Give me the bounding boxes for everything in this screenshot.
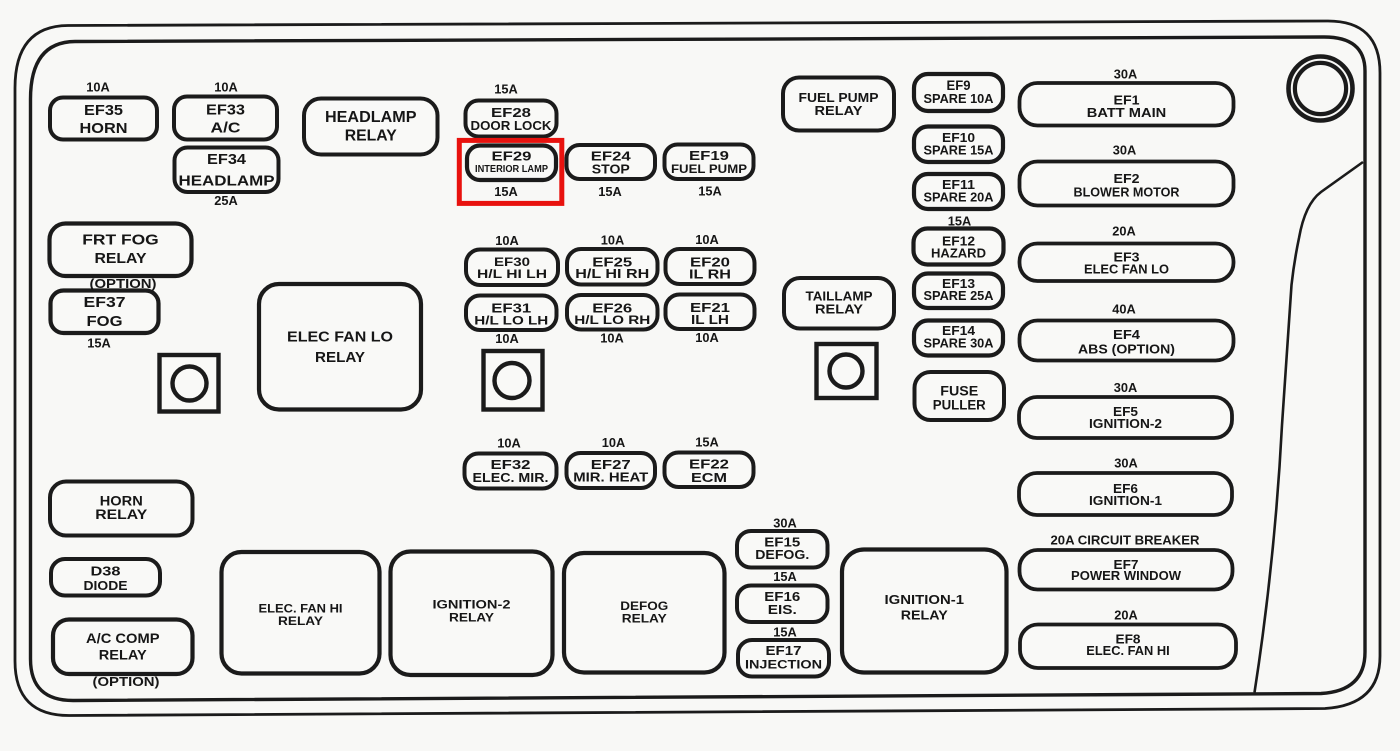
- svg-text:FUSE: FUSE: [940, 384, 978, 399]
- svg-text:30A: 30A: [773, 516, 797, 531]
- svg-text:HEADLAMP: HEADLAMP: [325, 109, 417, 126]
- svg-text:20A CIRCUIT BREAKER: 20A CIRCUIT BREAKER: [1051, 533, 1201, 548]
- svg-text:A/C COMP: A/C COMP: [86, 630, 160, 646]
- svg-text:H/L HI LH: H/L HI LH: [477, 267, 547, 281]
- svg-text:SPARE 20A: SPARE 20A: [924, 191, 994, 205]
- svg-text:ELEC. MIR.: ELEC. MIR.: [473, 471, 549, 485]
- svg-text:20A: 20A: [1112, 224, 1136, 239]
- svg-text:15A: 15A: [598, 184, 622, 199]
- svg-text:20A: 20A: [1114, 608, 1138, 623]
- svg-text:15A: 15A: [773, 569, 797, 584]
- svg-text:10A: 10A: [601, 233, 625, 248]
- svg-text:INJECTION: INJECTION: [745, 658, 822, 672]
- svg-text:RELAY: RELAY: [449, 611, 494, 625]
- svg-text:25A: 25A: [214, 193, 238, 208]
- svg-text:EF33: EF33: [206, 102, 245, 119]
- svg-text:EF34: EF34: [207, 151, 247, 168]
- svg-text:FRT FOG: FRT FOG: [82, 232, 159, 249]
- svg-text:15A: 15A: [948, 214, 972, 229]
- svg-text:IGNITION-2: IGNITION-2: [433, 598, 511, 612]
- svg-text:INTERIOR LAMP: INTERIOR LAMP: [475, 164, 548, 175]
- svg-text:BLOWER MOTOR: BLOWER MOTOR: [1074, 185, 1181, 200]
- svg-text:IGNITION-1: IGNITION-1: [885, 593, 965, 607]
- svg-text:FUEL PUMP: FUEL PUMP: [671, 162, 747, 176]
- svg-text:IGNITION-1: IGNITION-1: [1089, 493, 1162, 508]
- svg-text:EF28: EF28: [491, 105, 531, 120]
- svg-text:ELEC FAN LO: ELEC FAN LO: [1084, 262, 1169, 277]
- svg-text:30A: 30A: [1114, 380, 1138, 395]
- svg-text:BATT MAIN: BATT MAIN: [1087, 105, 1167, 120]
- svg-text:IL RH: IL RH: [689, 268, 731, 282]
- svg-text:40A: 40A: [1112, 302, 1136, 317]
- svg-text:15A: 15A: [87, 336, 111, 351]
- svg-text:IL LH: IL LH: [691, 313, 729, 327]
- svg-text:30A: 30A: [1114, 67, 1138, 82]
- svg-text:15A: 15A: [695, 435, 719, 450]
- svg-text:10A: 10A: [86, 80, 110, 95]
- svg-text:RELAY: RELAY: [95, 507, 147, 522]
- svg-text:EF32: EF32: [491, 457, 531, 472]
- svg-text:RELAY: RELAY: [815, 103, 863, 118]
- svg-text:ELEC FAN LO: ELEC FAN LO: [287, 330, 393, 346]
- svg-text:15A: 15A: [494, 184, 518, 199]
- svg-text:ABS (OPTION): ABS (OPTION): [1078, 342, 1175, 357]
- svg-text:DOOR LOCK: DOOR LOCK: [471, 119, 552, 133]
- svg-text:RELAY: RELAY: [622, 612, 667, 626]
- svg-text:RELAY: RELAY: [901, 609, 949, 623]
- svg-text:HEADLAMP: HEADLAMP: [179, 174, 275, 190]
- svg-text:15A: 15A: [698, 184, 722, 199]
- svg-text:30A: 30A: [1114, 456, 1138, 471]
- svg-text:10A: 10A: [695, 232, 719, 247]
- svg-text:(OPTION): (OPTION): [90, 276, 157, 291]
- svg-text:SPARE 15A: SPARE 15A: [924, 144, 994, 158]
- svg-text:EF29: EF29: [492, 149, 532, 164]
- svg-text:SPARE 10A: SPARE 10A: [924, 92, 994, 106]
- svg-text:EF37: EF37: [84, 294, 126, 311]
- svg-text:H/L LO LH: H/L LO LH: [474, 314, 548, 328]
- svg-text:10A: 10A: [600, 331, 624, 346]
- svg-text:MIR. HEAT: MIR. HEAT: [573, 471, 648, 485]
- svg-text:10A: 10A: [495, 331, 519, 346]
- svg-text:EF17: EF17: [766, 643, 802, 658]
- svg-text:15A: 15A: [773, 625, 797, 640]
- svg-text:STOP: STOP: [592, 162, 630, 177]
- svg-text:EF16: EF16: [764, 589, 800, 604]
- svg-text:EF9: EF9: [947, 78, 971, 93]
- svg-text:DEFOG.: DEFOG.: [755, 548, 809, 562]
- svg-text:EF35: EF35: [84, 102, 123, 119]
- svg-text:10A: 10A: [602, 435, 626, 450]
- svg-text:POWER WINDOW: POWER WINDOW: [1071, 568, 1182, 583]
- svg-text:EF4: EF4: [1113, 327, 1141, 342]
- svg-text:IGNITION-2: IGNITION-2: [1089, 416, 1162, 431]
- svg-text:ELEC. FAN HI: ELEC. FAN HI: [1086, 643, 1170, 658]
- svg-text:10A: 10A: [695, 330, 719, 345]
- svg-text:10A: 10A: [495, 233, 519, 248]
- svg-text:10A: 10A: [497, 436, 521, 451]
- svg-text:A/C: A/C: [211, 120, 241, 137]
- svg-text:RELAY: RELAY: [345, 128, 397, 145]
- svg-text:HORN: HORN: [80, 120, 128, 137]
- svg-text:H/L LO RH: H/L LO RH: [574, 313, 650, 327]
- svg-text:EIS.: EIS.: [768, 603, 797, 617]
- svg-text:15A: 15A: [494, 82, 518, 97]
- svg-text:FOG: FOG: [87, 313, 123, 330]
- svg-text:RELAY: RELAY: [278, 614, 323, 628]
- svg-text:PULLER: PULLER: [933, 398, 986, 413]
- svg-text:EF19: EF19: [689, 148, 729, 163]
- svg-text:(OPTION): (OPTION): [93, 674, 160, 689]
- svg-text:10A: 10A: [214, 80, 238, 95]
- svg-text:RELAY: RELAY: [815, 302, 863, 317]
- svg-text:SPARE 30A: SPARE 30A: [924, 337, 994, 351]
- svg-text:DIODE: DIODE: [84, 579, 128, 593]
- svg-text:RELAY: RELAY: [95, 250, 147, 267]
- svg-text:HAZARD: HAZARD: [931, 247, 986, 261]
- svg-text:RELAY: RELAY: [99, 647, 148, 663]
- svg-text:RELAY: RELAY: [315, 350, 365, 366]
- svg-text:D38: D38: [91, 565, 121, 579]
- svg-text:ECM: ECM: [691, 470, 727, 485]
- svg-text:SPARE 25A: SPARE 25A: [924, 289, 994, 303]
- svg-text:H/L HI RH: H/L HI RH: [575, 267, 649, 281]
- svg-text:30A: 30A: [1113, 143, 1137, 158]
